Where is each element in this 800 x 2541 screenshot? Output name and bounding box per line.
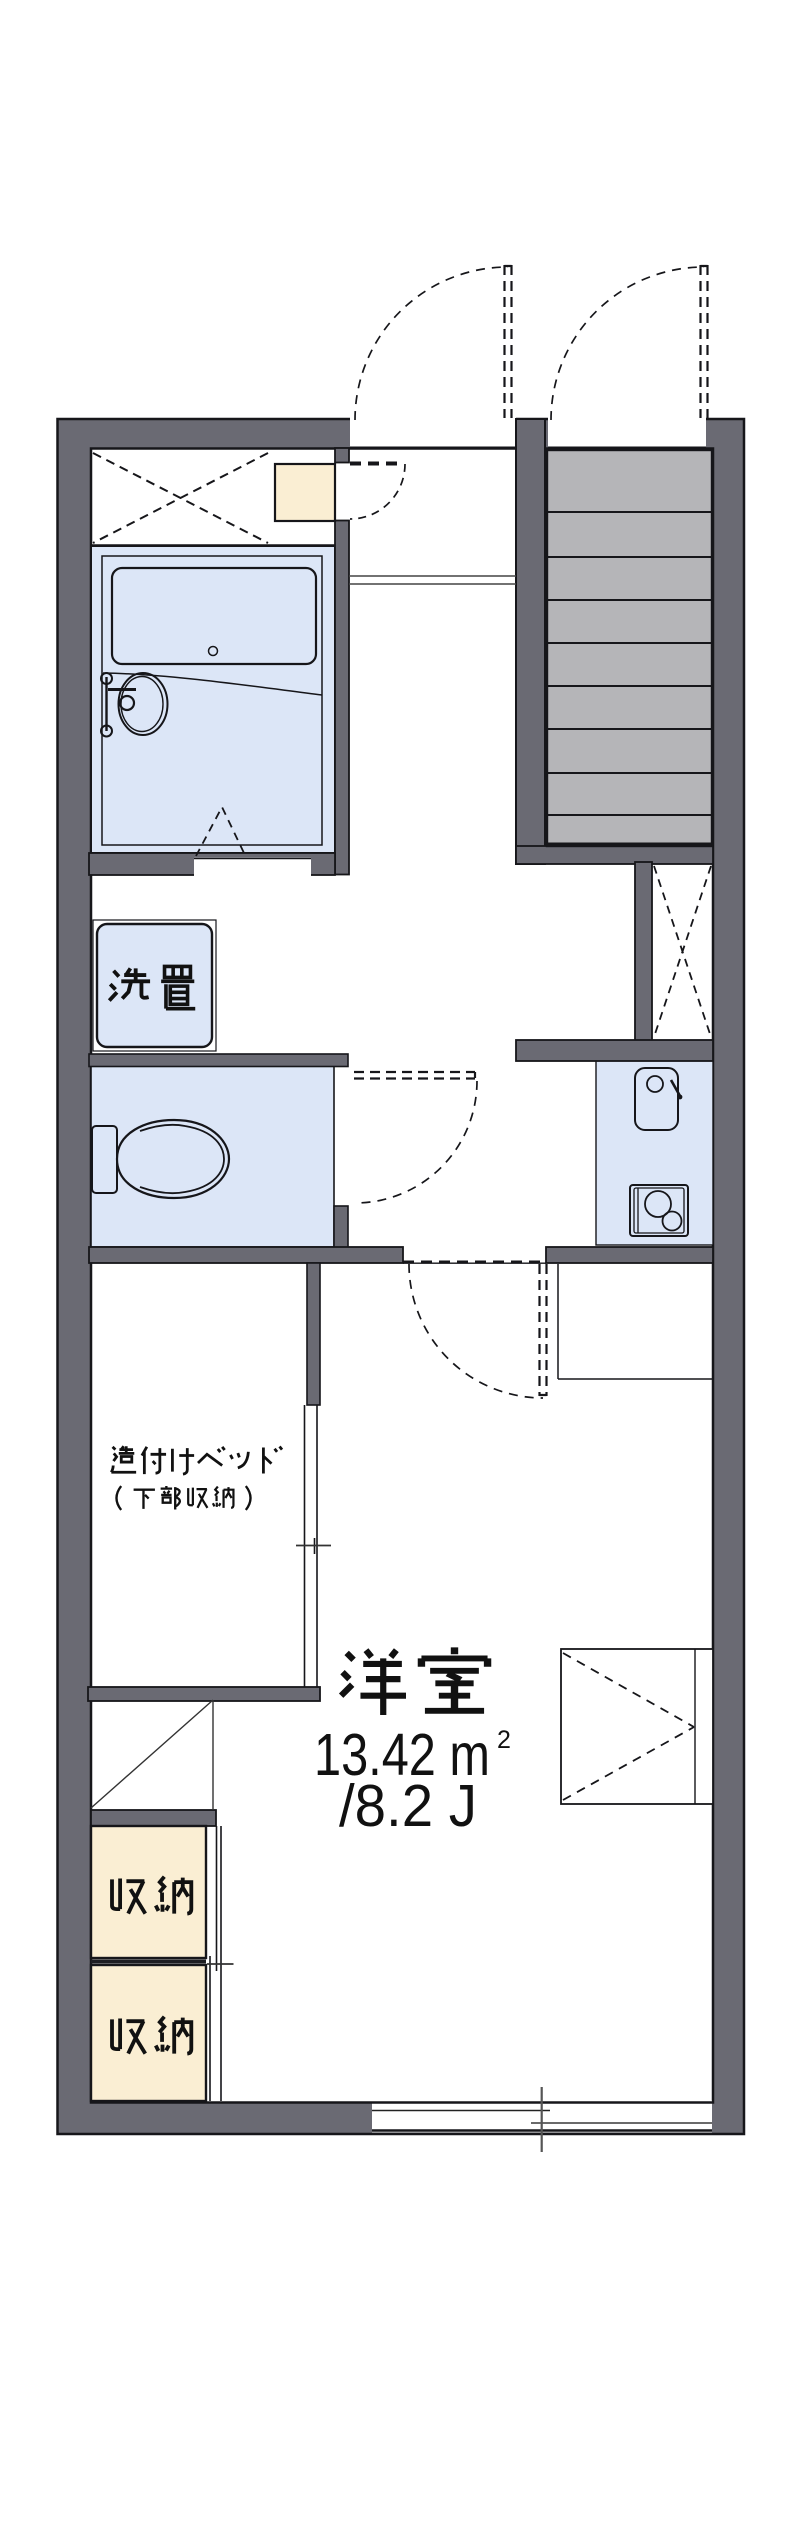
svg-text:2: 2 [497, 1726, 511, 1754]
svg-text:/8.2 J: /8.2 J [339, 1773, 477, 1839]
